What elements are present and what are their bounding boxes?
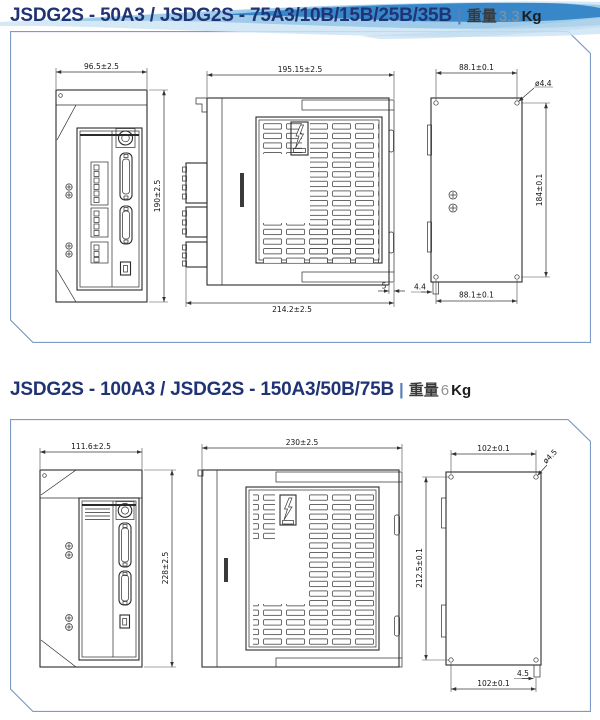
side-view-drawing: 230±2.5 — [198, 438, 402, 667]
handle-bar — [240, 173, 244, 207]
vent-slots — [307, 493, 375, 647]
chamfered-border — [11, 32, 591, 343]
weight-value: 6 — [439, 382, 451, 399]
dim-back-tab-offset: 4.4 — [414, 283, 426, 292]
dim-side-width: 230±2.5 — [286, 438, 319, 447]
dim-back-pitch-top: 102±0.1 — [477, 444, 510, 453]
chamfered-border — [11, 420, 591, 712]
header-divider: | — [394, 380, 409, 399]
terminal-blocks — [91, 162, 108, 263]
dim-back-pitch-top: 88.1±0.1 — [459, 63, 494, 72]
section1-drawing-box: 96.5±2.5 190±2.5 — [10, 31, 591, 343]
high-voltage-warning-icon — [280, 495, 296, 525]
datasheet-page: JSDG2S - 50A3 / JSDG2S - 75A3/10B/15B/25… — [0, 0, 600, 720]
dim-back-pitch-height: 212.5±0.1 — [415, 548, 424, 588]
dim-back-tab-offset: 4.5 — [517, 669, 529, 678]
front-view-drawing: 111.6±2.5 228±2.5 — [40, 442, 176, 667]
dim-back-pitch-height: 184±0.1 — [535, 174, 544, 207]
panel-screws — [66, 543, 73, 631]
section2-header: JSDG2S - 100A3 / JSDG2S - 150A3/50B/75B|… — [10, 379, 471, 401]
section1-header: JSDG2S - 50A3 / JSDG2S - 75A3/10B/15B/25… — [10, 5, 542, 27]
dim-back-hole-dia: ø4.5 — [541, 447, 559, 465]
weight-label: 重量 — [467, 8, 497, 25]
vent-slits — [85, 509, 110, 520]
dim-front-height: 190±2.5 — [153, 180, 162, 213]
weight-value: 3.3 — [497, 8, 522, 25]
vent-slots — [261, 120, 302, 154]
dsub-connectors — [119, 523, 131, 605]
dsub-connectors — [120, 153, 132, 244]
dim-front-height: 228±2.5 — [161, 552, 170, 585]
round-connector — [116, 129, 135, 148]
dim-front-width: 96.5±2.5 — [84, 62, 119, 71]
vent-slots — [253, 493, 275, 541]
dim-back-pitch-bottom: 102±0.1 — [477, 679, 510, 688]
page-title: JSDG2S - 50A3 / JSDG2S - 75A3/10B/15B/25… — [10, 5, 452, 26]
dim-side-overall-width: 214.2±2.5 — [272, 305, 312, 314]
dim-back-pitch-bottom: 88.1±0.1 — [459, 291, 494, 300]
back-screws — [449, 191, 457, 212]
front-view-drawing: 96.5±2.5 190±2.5 — [56, 62, 168, 302]
vent-slots — [261, 223, 379, 263]
vent-slots — [253, 604, 307, 648]
weight-label: 重量 — [409, 382, 439, 399]
weight-unit: Kg — [522, 8, 542, 25]
dim-side-width: 195.15±2.5 — [278, 65, 323, 74]
panel-screws — [66, 184, 72, 257]
page-title: JSDG2S - 100A3 / JSDG2S - 150A3/50B/75B — [10, 379, 394, 400]
weight-unit: Kg — [451, 382, 471, 399]
charge-switch — [121, 262, 131, 275]
back-view-drawing: 102±0.1 ø4.5 212.5±0.1 4.5 102±0.1 — [415, 444, 559, 692]
dim-front-width: 111.6±2.5 — [71, 442, 111, 451]
side-connectors — [183, 163, 208, 267]
charge-switch — [120, 615, 130, 628]
dim-side-tab-offset: 5 — [382, 282, 387, 291]
side-view-drawing: 195.15±2.5 214.2±2.5 5 — [183, 65, 406, 314]
dim-back-hole-dia: ø4.4 — [535, 79, 552, 88]
section2-drawing-box: 111.6±2.5 228±2.5 — [10, 419, 591, 712]
back-view-drawing: 88.1±0.1 ø4.4 184±0.1 4.4 88.1±0.1 — [411, 63, 553, 304]
handle-bar — [224, 558, 228, 582]
header-divider: | — [452, 6, 467, 25]
